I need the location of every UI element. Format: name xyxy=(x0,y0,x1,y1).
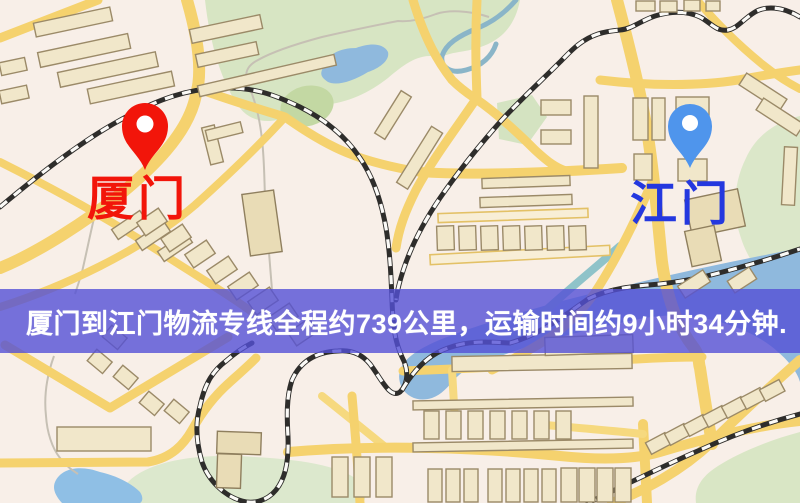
route-banner-text: 厦门到江门物流专线全程约739公里，运输时间约9小时34分钟. xyxy=(0,302,787,341)
map-screenshot: 厦门 江门 厦门到江门物流专线全程约739公里，运输时间约9小时34分钟. xyxy=(0,0,800,503)
destination-label: 江门 xyxy=(630,177,732,230)
origin-pin-hole xyxy=(137,116,154,133)
origin-label: 厦门 xyxy=(87,172,189,225)
route-banner: 厦门到江门物流专线全程约739公里，运输时间约9小时34分钟. xyxy=(0,289,800,353)
map-canvas: 厦门 江门 xyxy=(0,0,800,503)
destination-pin-hole xyxy=(682,115,698,131)
